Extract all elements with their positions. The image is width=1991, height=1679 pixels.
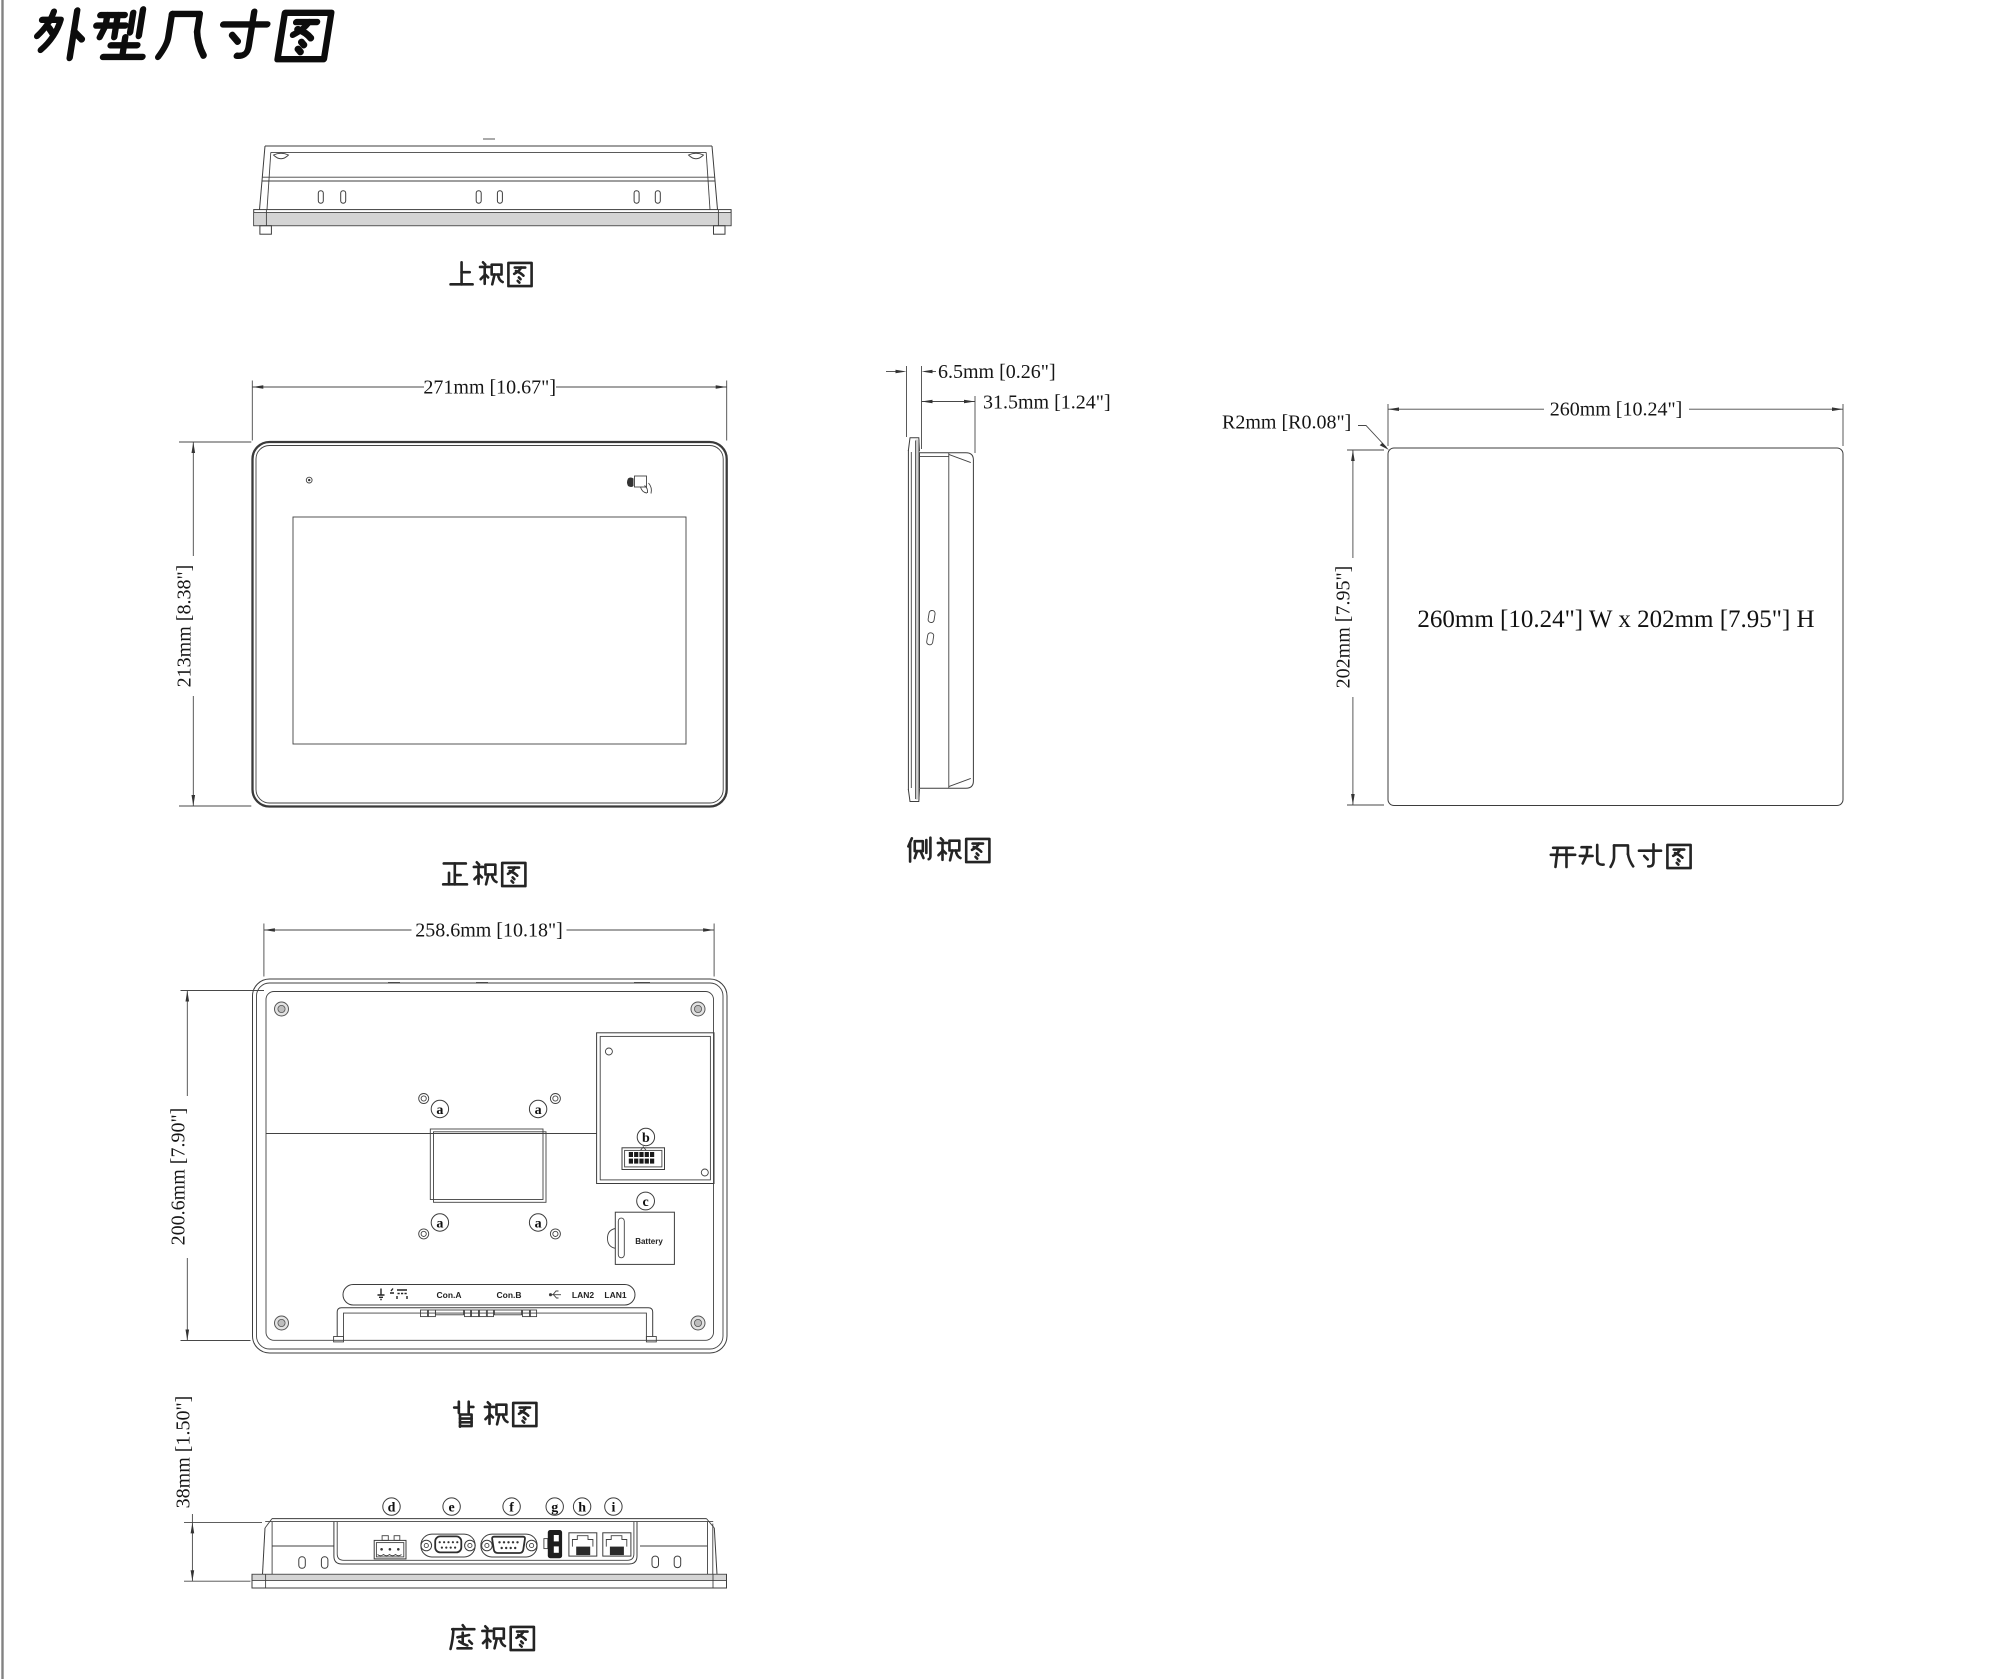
- svg-text:a: a: [436, 1103, 443, 1118]
- svg-text:Con.A: Con.A: [436, 1290, 461, 1300]
- svg-text:a: a: [535, 1103, 542, 1118]
- svg-text:LAN2: LAN2: [572, 1290, 594, 1300]
- svg-text:6.5mm [0.26"]: 6.5mm [0.26"]: [938, 361, 1056, 383]
- svg-text:g: g: [551, 1500, 558, 1515]
- svg-text:e: e: [448, 1500, 454, 1515]
- svg-text:38mm [1.50"]: 38mm [1.50"]: [173, 1396, 195, 1509]
- svg-text:260mm [10.24"]: 260mm [10.24"]: [1550, 399, 1683, 421]
- svg-text:i: i: [611, 1500, 615, 1515]
- svg-text:213mm [8.38"]: 213mm [8.38"]: [174, 565, 196, 688]
- svg-text:260mm [10.24"] W x 202mm [7.95: 260mm [10.24"] W x 202mm [7.95"] H: [1417, 606, 1814, 633]
- svg-text:271mm [10.67"]: 271mm [10.67"]: [423, 377, 556, 399]
- svg-text:c: c: [642, 1195, 648, 1210]
- svg-text:200.6mm [7.90"]: 200.6mm [7.90"]: [168, 1108, 190, 1246]
- svg-text:Battery: Battery: [635, 1237, 663, 1246]
- svg-text:h: h: [578, 1500, 586, 1515]
- svg-text:f: f: [509, 1500, 514, 1515]
- svg-text:202mm [7.95"]: 202mm [7.95"]: [1333, 566, 1355, 689]
- svg-text:b: b: [642, 1131, 650, 1146]
- svg-text:Con.B: Con.B: [496, 1290, 521, 1300]
- svg-text:R2mm [R0.08"]: R2mm [R0.08"]: [1222, 412, 1351, 434]
- svg-text:a: a: [436, 1216, 443, 1231]
- svg-text:a: a: [535, 1216, 542, 1231]
- svg-text:LAN1: LAN1: [604, 1290, 626, 1300]
- svg-text:d: d: [388, 1500, 396, 1515]
- svg-text:31.5mm [1.24"]: 31.5mm [1.24"]: [983, 392, 1111, 414]
- svg-text:258.6mm [10.18"]: 258.6mm [10.18"]: [415, 920, 563, 942]
